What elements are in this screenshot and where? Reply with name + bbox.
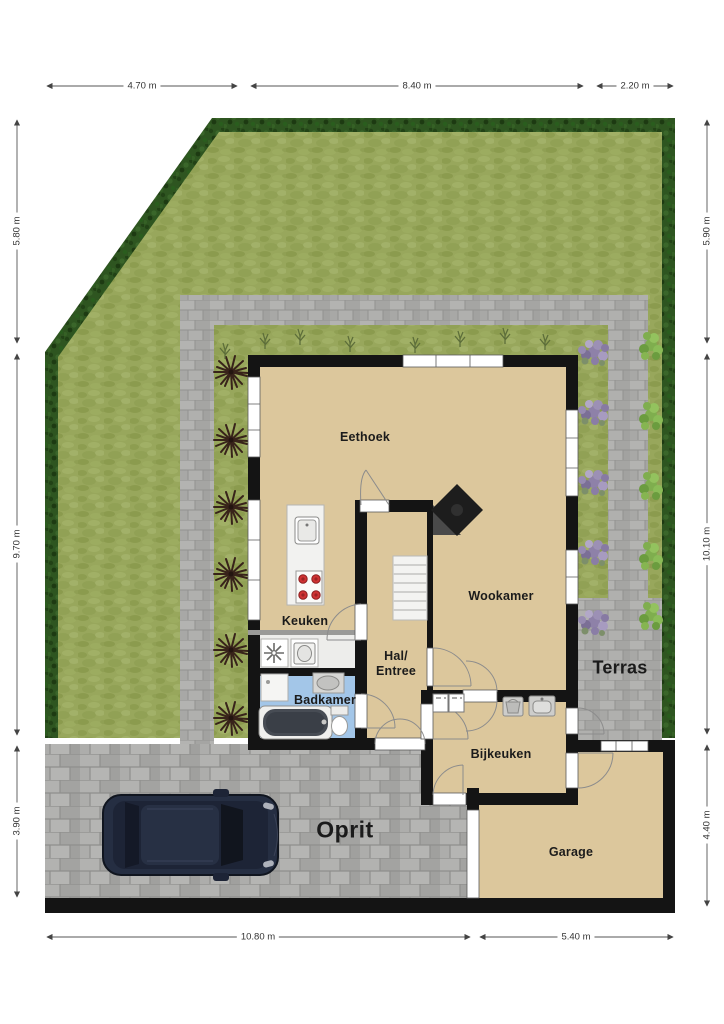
bathtub	[259, 706, 332, 739]
shower-tray	[261, 674, 288, 701]
door-opening	[360, 500, 389, 512]
dim-left-3: 3.90 m	[12, 802, 23, 839]
dim-right-1: 5.90 m	[702, 212, 713, 249]
dim-top-2: 8.40 m	[398, 81, 435, 92]
room-label-wookamer: Wookamer	[468, 589, 533, 603]
kitchen-sink-icon	[295, 517, 319, 544]
outdoor-label-terras: Terras	[593, 658, 648, 679]
door-opening	[433, 793, 466, 805]
floor-plan-drawing	[0, 0, 724, 1024]
door-opening	[427, 648, 433, 686]
kitchen-island	[287, 505, 324, 605]
front-door	[375, 738, 425, 750]
room-label-eethoek: Eethoek	[340, 430, 390, 444]
dim-right-2: 10.10 m	[702, 523, 713, 565]
door-opening	[355, 694, 367, 728]
sink-icon	[529, 696, 555, 716]
dim-right-3: 4.40 m	[702, 806, 713, 843]
toilet-icon	[331, 706, 348, 736]
hal-line2: Entree	[376, 664, 416, 678]
car-mirror	[213, 873, 229, 881]
ventilation-icon	[261, 639, 288, 667]
room-label-hal-entree: Hal/Entree	[376, 649, 416, 679]
room-label-keuken: Keuken	[282, 614, 328, 628]
dim-left-2: 9.70 m	[12, 525, 23, 562]
dim-top-1: 4.70 m	[123, 81, 160, 92]
washer-icon	[433, 694, 448, 712]
dim-bottom-2: 5.40 m	[557, 932, 594, 943]
room-label-bijkeuken: Bijkeuken	[471, 747, 532, 761]
stove-icon	[296, 571, 322, 603]
washbasin-icon	[291, 639, 318, 667]
dim-top-3: 2.20 m	[616, 81, 653, 92]
floor-plan: Eethoek Keuken Wookamer Hal/Entree Badka…	[0, 0, 724, 1024]
dim-left-1: 5.80 m	[12, 212, 23, 249]
staircase	[393, 556, 427, 620]
hal-line1: Hal/	[384, 649, 408, 663]
dryer-icon	[449, 694, 464, 712]
dim-bottom-1: 10.80 m	[237, 932, 279, 943]
door-opening	[355, 604, 367, 640]
outdoor-label-oprit: Oprit	[316, 817, 373, 844]
room-label-badkamer: Badkamer	[294, 693, 356, 707]
room-label-garage: Garage	[549, 845, 593, 859]
door-opening	[463, 690, 497, 702]
car-mirror	[213, 789, 229, 797]
door-opening	[566, 753, 578, 788]
bathroom-vanity	[313, 673, 344, 693]
garage-door	[467, 810, 479, 898]
laundry-basket-icon	[503, 697, 523, 716]
car	[103, 789, 278, 881]
door-opening	[566, 708, 578, 734]
